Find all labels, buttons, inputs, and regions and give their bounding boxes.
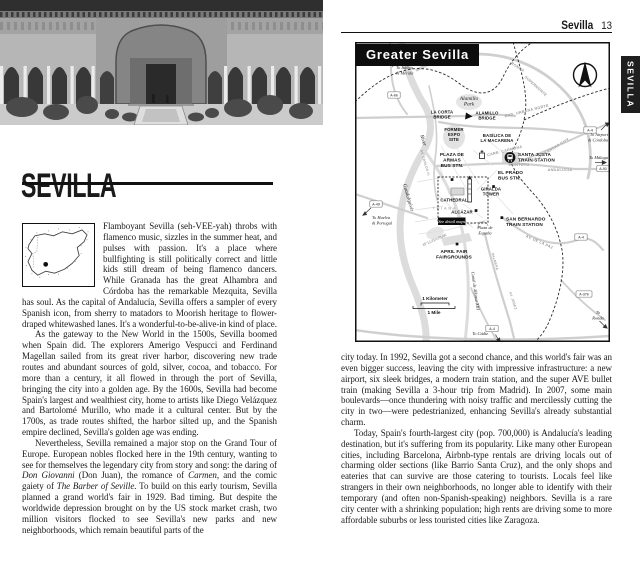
map-label: To Itálica& Mérida <box>396 65 414 75</box>
santa-justa-train-icon <box>505 152 516 163</box>
map-label: SAN BERNARDOTRAIN STATION <box>506 217 546 227</box>
header-rule <box>341 32 612 33</box>
left-column: Flamboyant Sevilla (seh-VEE-yah) throbs … <box>22 221 277 535</box>
map-label: BASÍLICA DELA MACARENA <box>481 133 514 143</box>
body-paragraph: As the gateway to the New World in the 1… <box>22 329 277 437</box>
courtyard-photo <box>0 0 323 125</box>
map-label: MONTOTO <box>508 163 529 167</box>
right-column: city today. In 1992, Sevilla got a secon… <box>341 352 612 526</box>
thumb-tab-label: SEVILLA <box>626 61 636 108</box>
map-label: ANDALUCÍA <box>548 167 573 172</box>
map-label: EL PRADOBUS STN. <box>498 170 523 180</box>
plaza-de-armas-marker <box>451 178 454 181</box>
body-paragraph: Today, Spain's fourth-largest city (pop.… <box>341 428 612 526</box>
road-shield-label: A-4 <box>489 327 495 331</box>
map-label: GIRALDATOWER <box>481 187 501 197</box>
title-rule <box>22 182 273 185</box>
map-label: CATHEDRAL <box>440 198 468 203</box>
road-shield-label: A-66 <box>390 93 398 97</box>
courtyard-photo-art <box>0 0 323 125</box>
map-label: See detail maps <box>438 219 465 224</box>
map-label: PLAZA DEARMASBUS STN. <box>440 152 464 168</box>
road-shield-label: A-376 <box>579 292 589 296</box>
san-bernardo-marker <box>501 216 504 219</box>
giralda-tower-icon <box>468 176 472 203</box>
map-label: APRIL FAIRFAIRGROUNDS <box>436 249 472 259</box>
city-map: A-66A-49A-4A-92A-4A-376A-4 To Itálica& M… <box>355 42 610 342</box>
map-label: To Huelva& Portugal <box>372 215 393 225</box>
map-title: Greater Sevilla <box>356 44 479 66</box>
fairgrounds-marker <box>456 243 459 246</box>
map-label: Plaza deEspaña <box>476 225 492 235</box>
sevilla-thumb-tab: SEVILLA <box>621 56 640 113</box>
map-label: TRIANA <box>433 206 458 211</box>
map-label: LA CORTABRIDGE <box>431 110 454 120</box>
cathedral-footprint <box>451 188 464 195</box>
spain-inset-map <box>22 223 95 287</box>
body-paragraph: city today. In 1992, Sevilla got a secon… <box>341 352 612 428</box>
page-number: 13 <box>601 20 612 32</box>
guidebook-page: Sevilla13 SEVILLA SEVILLA <box>0 0 640 568</box>
spain-outline <box>23 224 93 285</box>
map-label: 1 Kilometer <box>422 296 448 301</box>
road-shield-label: A-49 <box>372 202 380 206</box>
map-label: 1 Mile <box>427 310 440 315</box>
map-label: ALAMILLOBRIDGE <box>476 111 500 121</box>
city-map-svg: A-66A-49A-4A-92A-4A-376A-4 To Itálica& M… <box>355 42 610 342</box>
alcazar-marker <box>475 209 478 212</box>
road-shield-label: A-4 <box>578 235 584 239</box>
body-paragraph: Nevertheless, Sevilla remained a major s… <box>22 438 277 536</box>
road-shield-label: A-92 <box>599 167 607 171</box>
map-label: To Cádiz <box>472 331 488 336</box>
map-label: To Málaga <box>589 155 609 160</box>
header-section-label: Sevilla <box>561 20 593 32</box>
page-title: SEVILLA <box>21 168 116 204</box>
map-label: To Airport& Córdoba <box>588 132 609 142</box>
sevilla-location-dot <box>43 262 48 267</box>
